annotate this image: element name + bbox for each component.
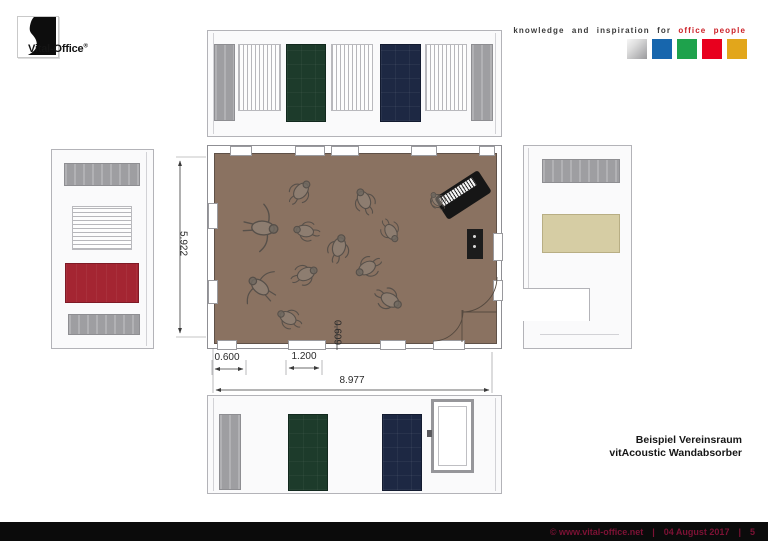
footer-copyright[interactable]: © www.vital-office.net bbox=[550, 527, 643, 537]
curtain-panel-gray bbox=[471, 44, 493, 121]
registered-mark: ® bbox=[83, 43, 87, 49]
tagline: knowledge and inspiration for office peo… bbox=[513, 26, 746, 35]
document-page: Vital-Office® knowledge and inspiration … bbox=[0, 0, 768, 543]
door-handle-icon bbox=[427, 430, 432, 437]
slat-absorber-panel bbox=[72, 206, 132, 250]
curtain-panel-gray bbox=[219, 414, 241, 490]
window bbox=[380, 340, 406, 350]
dimension-door-offset: 0.609 bbox=[332, 313, 343, 353]
slat-absorber-panel bbox=[425, 44, 467, 111]
absorber-panel-red bbox=[65, 263, 139, 303]
curtain-panel-gray bbox=[64, 163, 140, 186]
door bbox=[431, 399, 474, 473]
tagline-highlight: office people bbox=[678, 26, 746, 35]
window bbox=[295, 146, 325, 156]
window bbox=[208, 203, 218, 229]
window bbox=[208, 280, 218, 304]
dimension-total-width: 8.977 bbox=[313, 375, 391, 386]
absorber-panel-green bbox=[286, 44, 326, 122]
curtain-panel-gray bbox=[542, 159, 620, 183]
footer-page-number: 5 bbox=[750, 527, 755, 537]
title-line1: Beispiel Vereinsraum bbox=[609, 434, 742, 447]
tagline-prefix: knowledge and inspiration for bbox=[513, 26, 671, 35]
absorber-panel-green bbox=[288, 414, 328, 491]
curtain-panel-gray bbox=[68, 314, 140, 335]
room-floor bbox=[214, 153, 497, 344]
slat-absorber-panel bbox=[331, 44, 373, 111]
sideboard bbox=[467, 229, 483, 259]
curtain-panel-gray bbox=[214, 44, 235, 121]
elevation-bottom-wall bbox=[207, 395, 502, 494]
color-swatch-silver bbox=[627, 39, 647, 59]
color-swatch-red bbox=[702, 39, 722, 59]
floor-line bbox=[540, 334, 619, 335]
wall-section-line bbox=[146, 152, 147, 346]
elevation-top-wall bbox=[207, 30, 502, 137]
floor-plan bbox=[207, 145, 502, 349]
wall-section-line bbox=[495, 398, 496, 491]
window bbox=[230, 146, 252, 156]
wall-section-line bbox=[528, 148, 529, 288]
window bbox=[217, 340, 237, 350]
brand-name: Vital-Office® bbox=[28, 43, 88, 55]
brand-color-swatches bbox=[627, 39, 747, 59]
elevation-left-wall bbox=[51, 149, 154, 349]
wall-section-line bbox=[495, 33, 496, 134]
window bbox=[331, 146, 359, 156]
color-swatch-blue bbox=[652, 39, 672, 59]
door-panel bbox=[438, 406, 467, 466]
window bbox=[493, 280, 503, 301]
dimension-panel-offset: 0.600 bbox=[206, 352, 248, 363]
window bbox=[493, 233, 503, 261]
color-swatch-gold bbox=[727, 39, 747, 59]
wall-section-line bbox=[213, 398, 214, 491]
footer-bar: © www.vital-office.net | 04 August 2017 … bbox=[0, 522, 768, 541]
brand-label: Vital-Office bbox=[28, 43, 83, 55]
footer-separator: | bbox=[652, 527, 655, 537]
window bbox=[288, 340, 326, 350]
slat-absorber-panel bbox=[238, 44, 281, 111]
door-opening-notch bbox=[523, 288, 590, 321]
absorber-panel-navy bbox=[382, 414, 422, 491]
dimension-panel-width: 1.200 bbox=[283, 351, 325, 362]
absorber-panel-beige bbox=[542, 214, 620, 253]
window bbox=[479, 146, 495, 156]
footer-date: 04 August 2017 bbox=[664, 527, 730, 537]
title-line2: vitAcoustic Wandabsorber bbox=[609, 447, 742, 460]
elevation-right-wall bbox=[523, 145, 632, 349]
door-opening bbox=[433, 340, 465, 350]
footer-separator: | bbox=[738, 527, 741, 537]
window bbox=[411, 146, 437, 156]
dimension-room-depth: 5.922 bbox=[178, 224, 189, 264]
color-swatch-green bbox=[677, 39, 697, 59]
title-block: Beispiel Vereinsraum vitAcoustic Wandabs… bbox=[609, 434, 742, 460]
absorber-panel-navy bbox=[380, 44, 421, 122]
